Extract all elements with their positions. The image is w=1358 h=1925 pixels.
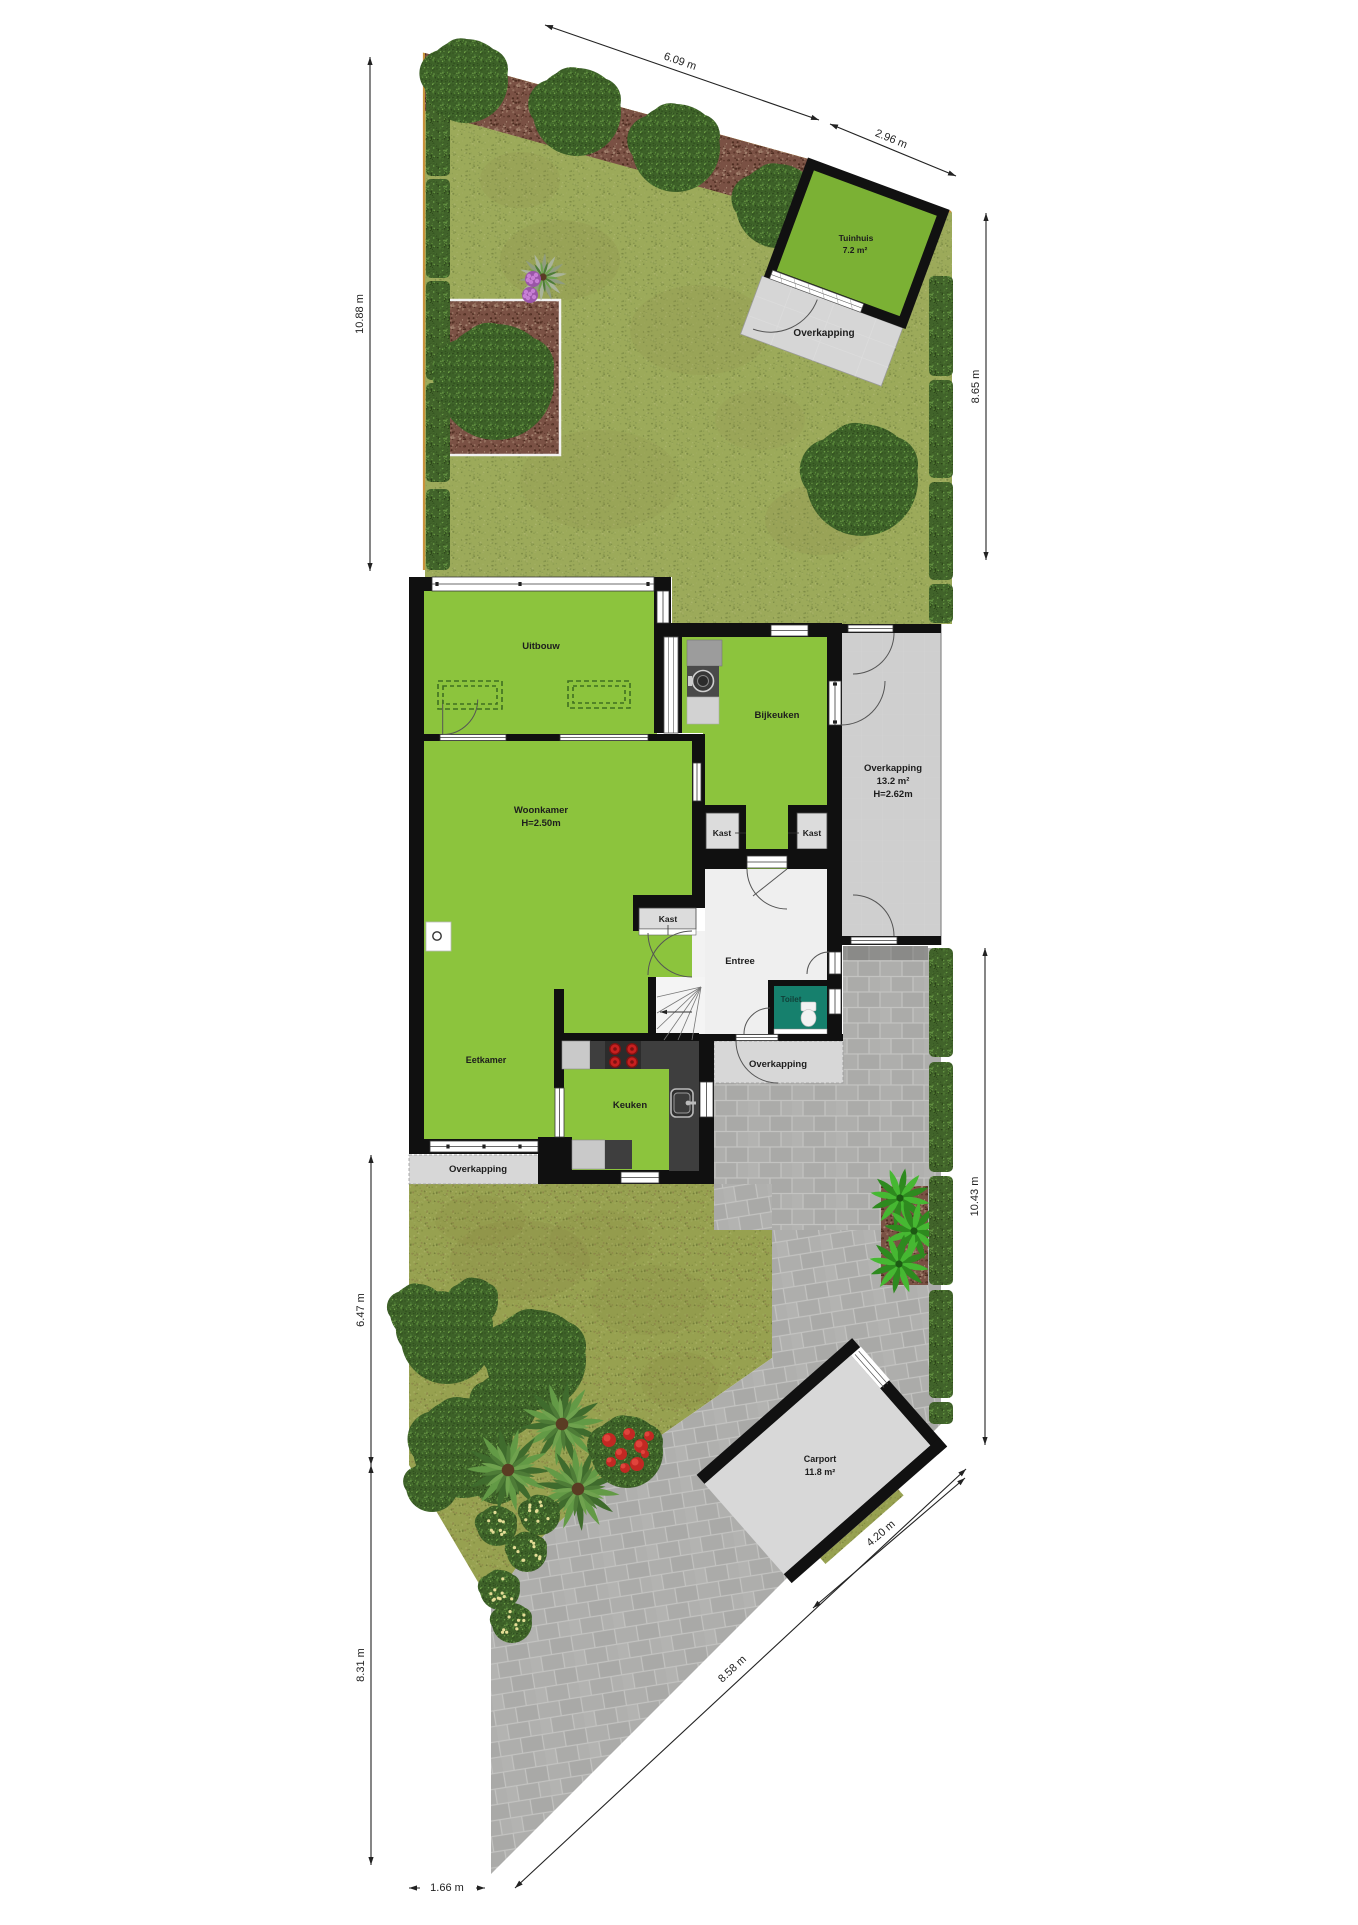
svg-text:H=2.62m: H=2.62m (873, 789, 912, 800)
svg-text:Carport: Carport (804, 1454, 837, 1464)
svg-text:Woonkamer: Woonkamer (514, 805, 569, 816)
svg-text:Overkapping: Overkapping (864, 763, 922, 774)
svg-text:Overkapping: Overkapping (749, 1059, 807, 1070)
svg-text:Kast: Kast (659, 914, 678, 924)
svg-text:Toilet: Toilet (781, 995, 802, 1004)
svg-text:11.8 m²: 11.8 m² (805, 1467, 836, 1477)
svg-text:Kast: Kast (713, 828, 732, 838)
svg-text:10.88 m: 10.88 m (354, 294, 366, 334)
svg-text:Entree: Entree (725, 956, 755, 967)
svg-text:8.31 m: 8.31 m (355, 1648, 367, 1682)
svg-text:Kast: Kast (803, 828, 822, 838)
svg-text:Eetkamer: Eetkamer (466, 1055, 507, 1065)
svg-text:6.09 m: 6.09 m (662, 50, 698, 72)
svg-text:2.96 m: 2.96 m (873, 127, 909, 151)
svg-text:6.47 m: 6.47 m (355, 1293, 367, 1327)
svg-text:10.43 m: 10.43 m (969, 1177, 981, 1217)
svg-text:8.58 m: 8.58 m (716, 1653, 749, 1685)
svg-text:Tuinhuis: Tuinhuis (839, 233, 874, 243)
svg-text:Uitbouw: Uitbouw (522, 641, 560, 652)
svg-text:1.66 m: 1.66 m (430, 1882, 464, 1894)
svg-text:7.2 m²: 7.2 m² (843, 245, 868, 255)
svg-text:Overkapping: Overkapping (449, 1164, 507, 1175)
svg-text:8.65 m: 8.65 m (970, 370, 982, 404)
svg-text:Keuken: Keuken (613, 1100, 648, 1111)
svg-text:13.2 m²: 13.2 m² (877, 776, 910, 787)
svg-text:Overkapping: Overkapping (793, 328, 854, 339)
svg-text:Bijkeuken: Bijkeuken (755, 710, 800, 721)
svg-text:H=2.50m: H=2.50m (521, 818, 560, 829)
